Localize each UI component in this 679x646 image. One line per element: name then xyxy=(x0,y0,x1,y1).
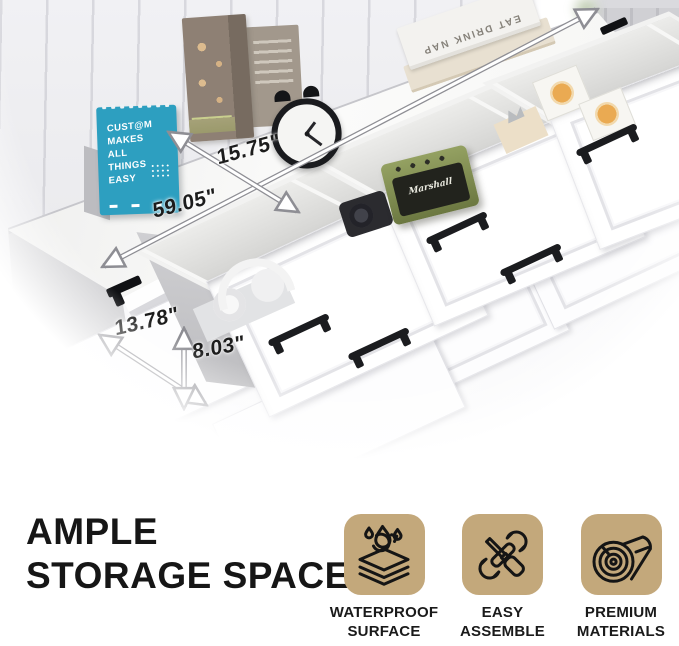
spiral-binding xyxy=(100,100,172,113)
speaker-brand-text: Marshall xyxy=(395,173,466,200)
clock-hour-hand xyxy=(305,121,316,134)
calendar-text: CUST@M MAKES ALL THINGS EASY xyxy=(107,118,155,188)
feature-easy-assemble: EASY ASSEMBLE xyxy=(445,514,561,641)
waterproof-icon xyxy=(348,519,420,591)
premium-materials-icon xyxy=(585,519,657,591)
calendar-dot-grid xyxy=(150,163,170,178)
heading-line-2: STORAGE SPACE xyxy=(26,554,350,598)
feature-icon-tile xyxy=(581,514,662,595)
section-heading: AMPLE STORAGE SPACE xyxy=(26,510,350,598)
feature-label: WATERPROOF SURFACE xyxy=(326,603,442,641)
clock-minute-hand xyxy=(306,132,323,145)
heading-line-1: AMPLE xyxy=(26,510,350,554)
feature-label: EASY ASSEMBLE xyxy=(445,603,561,641)
feature-waterproof: WATERPROOF SURFACE xyxy=(326,514,442,641)
feature-icon-tile xyxy=(344,514,425,595)
photo-scene: CUST@M MAKES ALL THINGS EASY EAT DRINK N… xyxy=(0,0,679,492)
easy-assemble-icon xyxy=(467,519,539,591)
snack-box-tall xyxy=(182,14,254,142)
product-listing-image: CUST@M MAKES ALL THINGS EASY EAT DRINK N… xyxy=(0,0,679,646)
feature-icon-tile xyxy=(462,514,543,595)
feature-premium-materials: PREMIUM MATERIALS xyxy=(563,514,679,641)
feature-list: WATERPROOF SURFACE xyxy=(326,514,679,641)
caption-section: AMPLE STORAGE SPACE xyxy=(0,480,679,646)
feature-label: PREMIUM MATERIALS xyxy=(563,603,679,641)
